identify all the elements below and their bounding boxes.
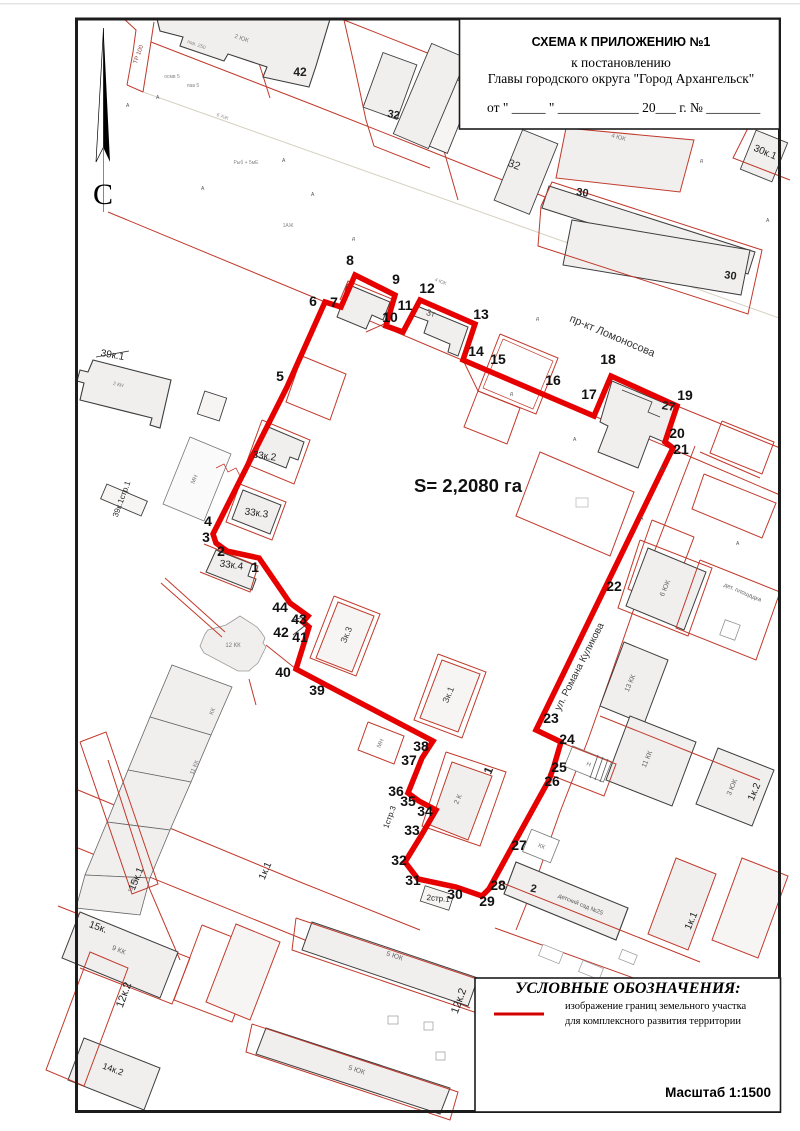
svg-text:4: 4 xyxy=(204,513,212,529)
svg-text:12: 12 xyxy=(419,280,435,296)
svg-text:Главы городского округа "Город: Главы городского округа "Город Архангель… xyxy=(488,71,755,86)
svg-text:32: 32 xyxy=(391,852,407,868)
svg-text:13: 13 xyxy=(473,306,489,322)
svg-text:30: 30 xyxy=(576,186,590,200)
svg-text:изображение границ земельного: изображение границ земельного участка xyxy=(565,1001,747,1012)
svg-text:5: 5 xyxy=(276,368,284,384)
svg-text:1АЖ: 1АЖ xyxy=(283,223,294,229)
svg-text:31: 31 xyxy=(405,872,421,888)
svg-text:9: 9 xyxy=(392,271,400,287)
svg-text:22: 22 xyxy=(606,578,622,594)
svg-text:11: 11 xyxy=(398,297,413,313)
svg-text:16: 16 xyxy=(545,372,561,388)
svg-text:36: 36 xyxy=(388,783,404,799)
svg-text:д: д xyxy=(536,316,539,322)
svg-text:д: д xyxy=(510,391,513,397)
svg-text:12 КК: 12 КК xyxy=(225,643,241,649)
svg-text:26: 26 xyxy=(544,773,560,789)
svg-text:41: 41 xyxy=(292,629,308,645)
svg-text:40: 40 xyxy=(275,664,291,680)
svg-text:от " _____ " ____________ 20__: от " _____ " ____________ 20___ г. № ___… xyxy=(487,100,761,115)
svg-text:34: 34 xyxy=(417,803,433,819)
svg-text:24: 24 xyxy=(559,731,575,747)
svg-text:27: 27 xyxy=(511,837,527,853)
svg-text:3: 3 xyxy=(202,529,210,545)
svg-text:33: 33 xyxy=(404,822,420,838)
svg-text:С: С xyxy=(93,178,113,211)
svg-text:42: 42 xyxy=(273,624,289,640)
svg-text:20: 20 xyxy=(669,425,685,441)
svg-text:для комплексного развития терр: для комплексного развития территории xyxy=(565,1016,741,1027)
svg-text:42: 42 xyxy=(293,65,307,79)
svg-text:37: 37 xyxy=(401,752,417,768)
svg-text:S= 2,2080 га: S= 2,2080 га xyxy=(414,475,523,496)
svg-text:17: 17 xyxy=(581,386,597,402)
svg-text:10: 10 xyxy=(382,309,398,325)
svg-text:38: 38 xyxy=(413,738,429,754)
svg-text:30: 30 xyxy=(724,269,738,283)
svg-text:1: 1 xyxy=(251,559,259,575)
svg-text:18: 18 xyxy=(600,351,616,367)
svg-text:7: 7 xyxy=(330,294,338,310)
svg-text:Рыб + 5мЕ: Рыб + 5мЕ xyxy=(233,160,259,166)
svg-text:39: 39 xyxy=(309,682,325,698)
svg-text:14: 14 xyxy=(468,343,484,359)
svg-text:6: 6 xyxy=(309,293,317,309)
svg-text:27: 27 xyxy=(661,398,677,414)
svg-text:Масштаб 1:1500: Масштаб 1:1500 xyxy=(665,1085,771,1100)
svg-text:43: 43 xyxy=(291,611,307,627)
svg-text:УСЛОВНЫЕ ОБОЗНАЧЕНИЯ:: УСЛОВНЫЕ ОБОЗНАЧЕНИЯ: xyxy=(515,980,740,997)
svg-text:23: 23 xyxy=(543,710,559,726)
svg-text:29: 29 xyxy=(479,893,495,909)
svg-text:8: 8 xyxy=(346,252,354,268)
svg-text:пав 5: пав 5 xyxy=(187,83,200,89)
svg-text:32: 32 xyxy=(386,108,400,122)
svg-text:19: 19 xyxy=(677,387,693,403)
svg-text:21: 21 xyxy=(673,441,689,457)
svg-text:СХЕМА К ПРИЛОЖЕНИЮ №1: СХЕМА К ПРИЛОЖЕНИЮ №1 xyxy=(532,35,711,49)
svg-text:2: 2 xyxy=(217,543,225,559)
svg-text:44: 44 xyxy=(272,599,288,615)
svg-text:д: д xyxy=(700,158,703,164)
svg-text:28: 28 xyxy=(490,877,506,893)
svg-text:д: д xyxy=(352,236,355,242)
svg-text:осмв 5: осмв 5 xyxy=(164,74,180,80)
svg-text:к постановлению: к постановлению xyxy=(571,55,671,70)
svg-text:15: 15 xyxy=(490,351,506,367)
